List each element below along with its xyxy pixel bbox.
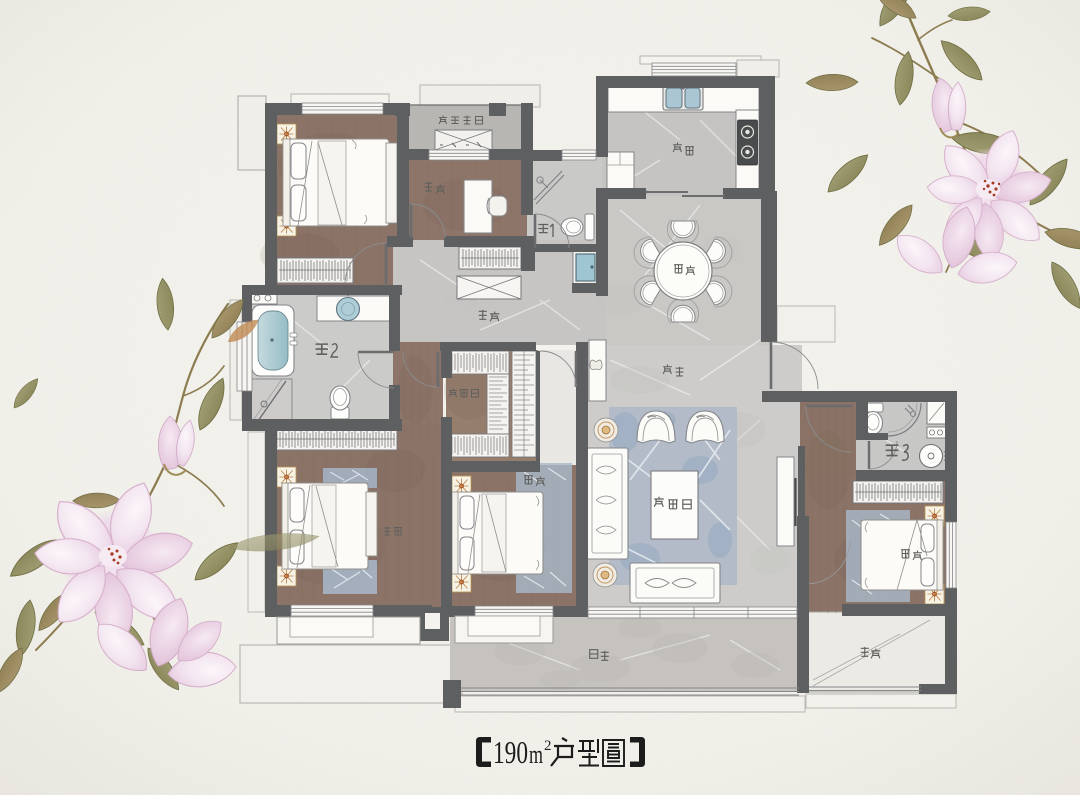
svg-text:2: 2	[544, 738, 552, 754]
svg-text:190: 190	[493, 734, 528, 770]
svg-text:m: m	[529, 740, 543, 769]
